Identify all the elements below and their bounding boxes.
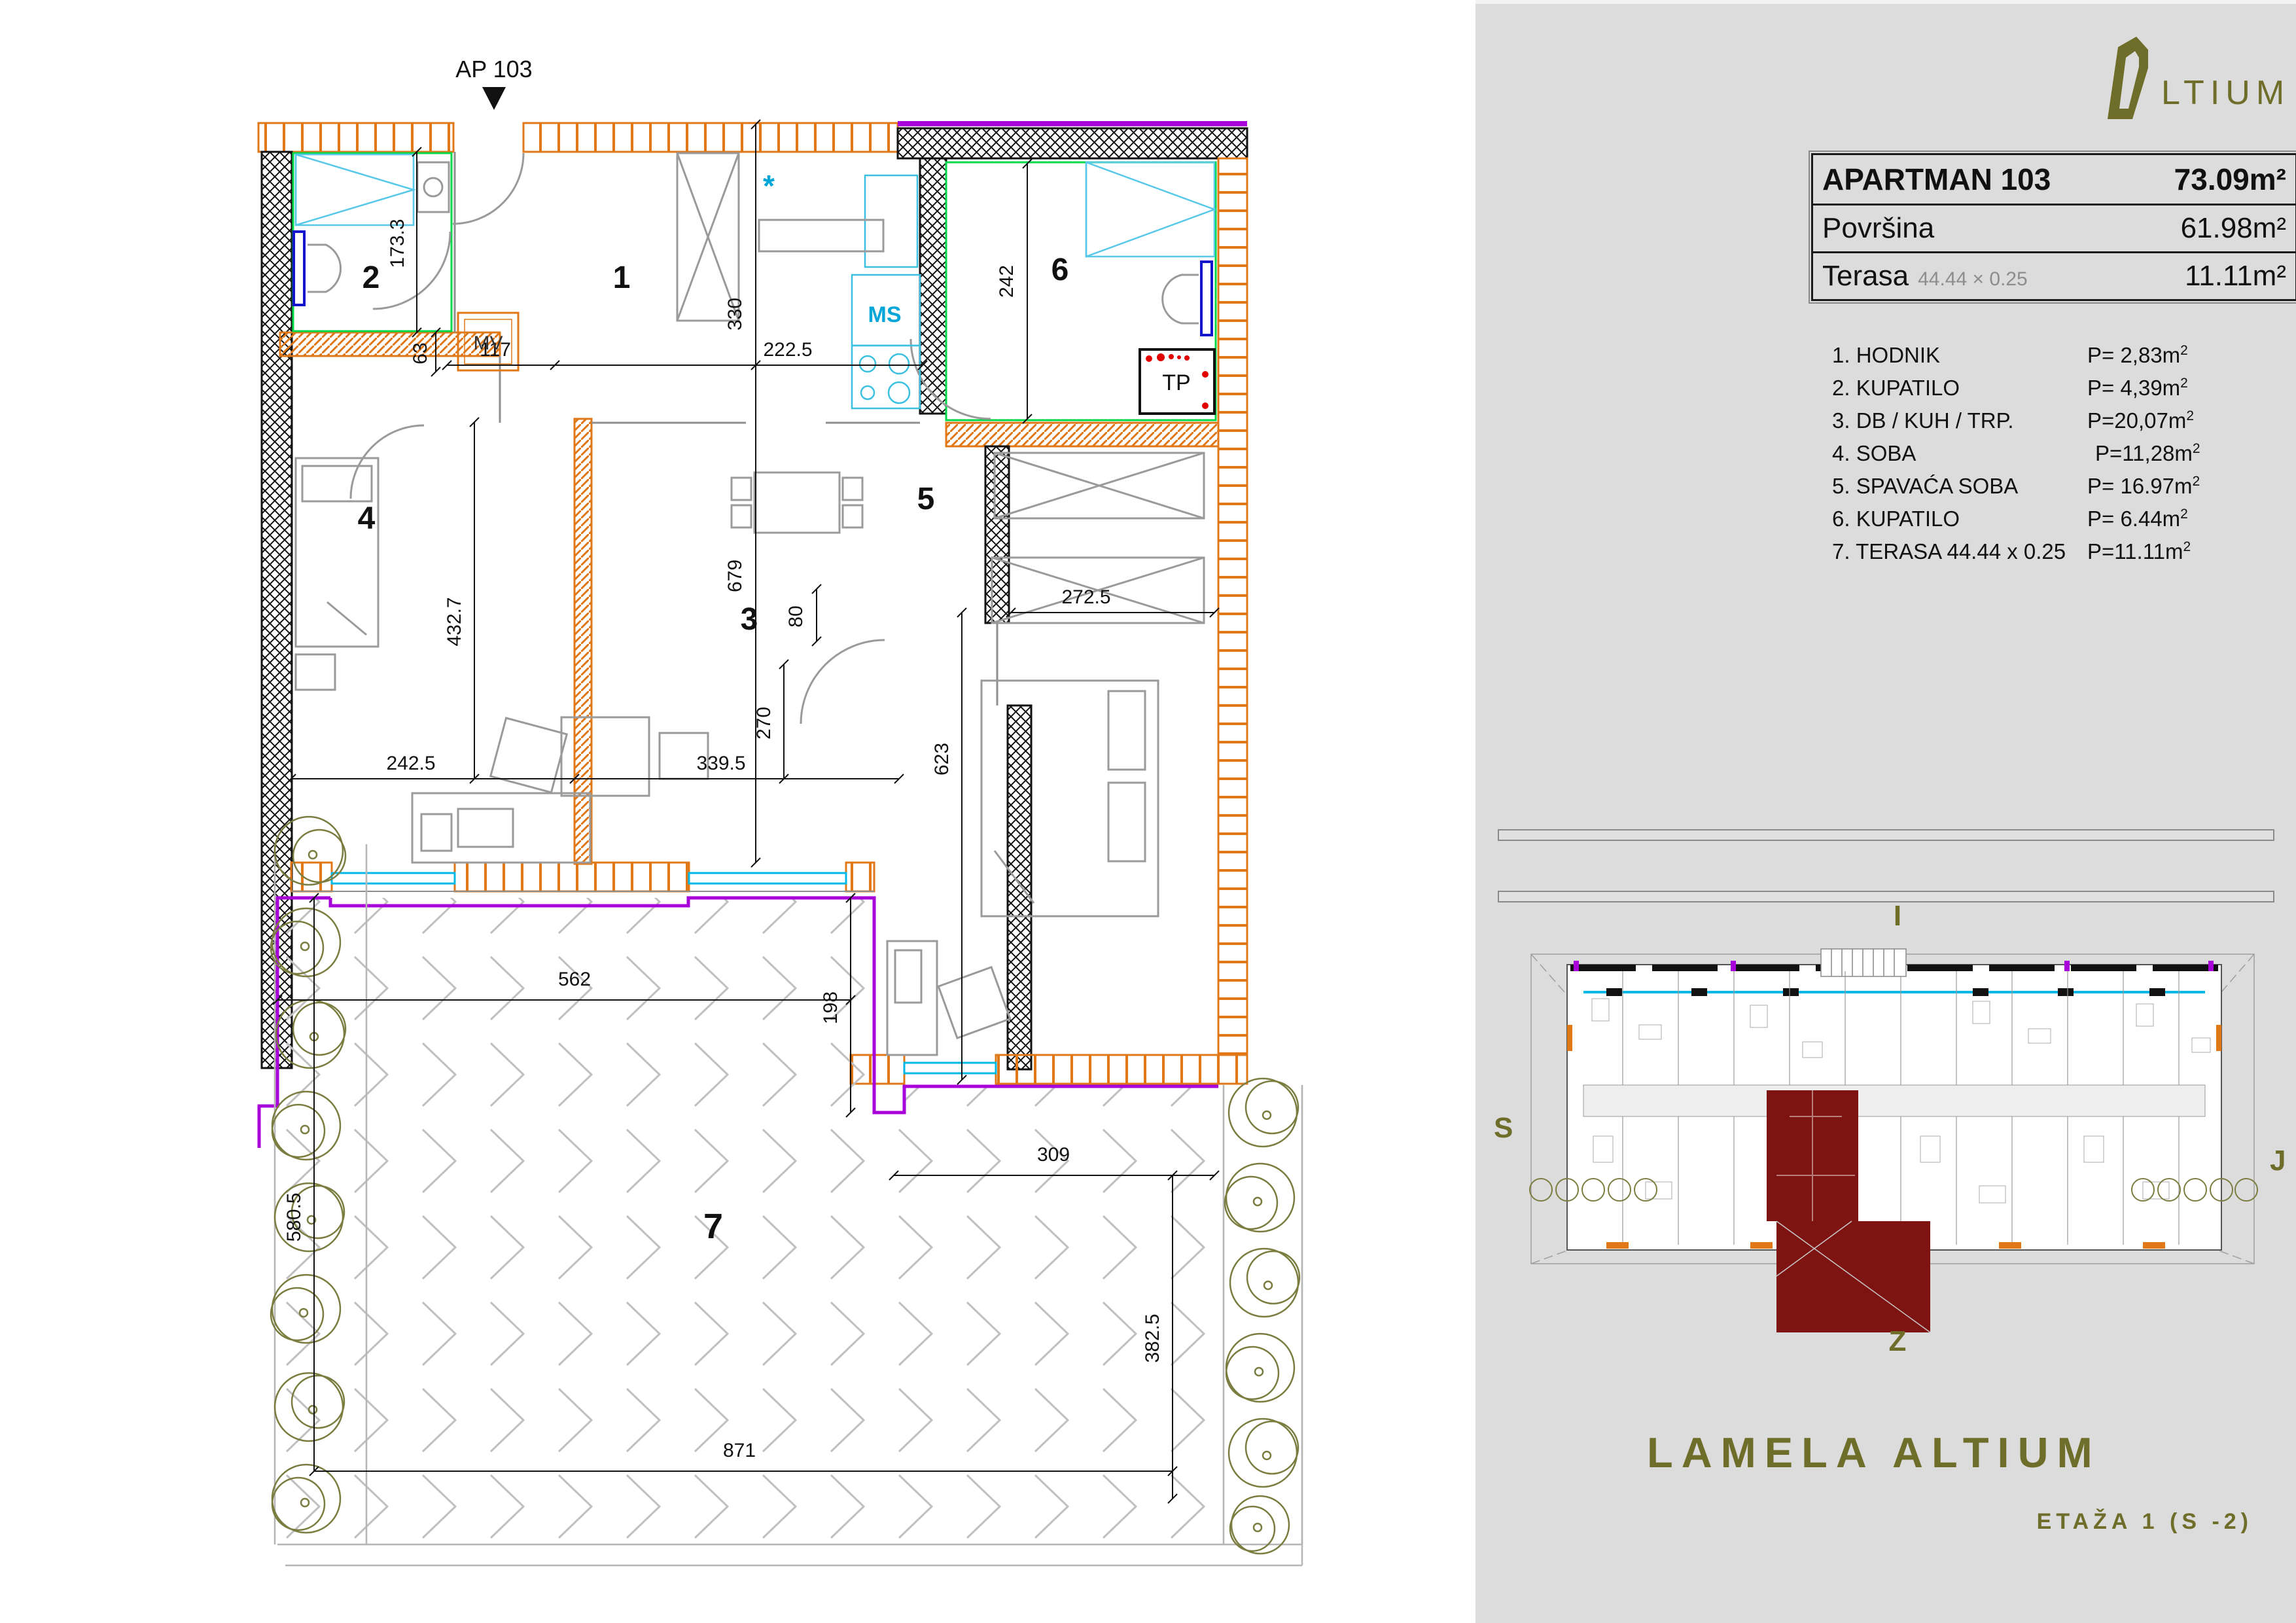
wall-top-crosshatch <box>898 128 1247 158</box>
window-terrace-1 <box>332 873 455 883</box>
room-label-6: 6 <box>1051 253 1069 287</box>
room-label-3: 3 <box>741 602 758 637</box>
marker-arrow-icon <box>482 87 506 110</box>
wall-top-purple <box>898 121 1247 126</box>
room6-toilet <box>1163 275 1199 323</box>
compass-west: S <box>1494 1112 1513 1144</box>
svg-text:173.3: 173.3 <box>387 219 408 268</box>
tree-column-right <box>1225 1079 1299 1554</box>
room6-shower <box>1086 162 1214 257</box>
dim-330: 330 <box>724 120 760 365</box>
compass-north: I <box>1894 900 1901 932</box>
wall-top-b <box>523 123 898 152</box>
dim-2425: 242.5 <box>386 753 435 774</box>
page: AP 103 <box>0 0 2296 1623</box>
star-label: * <box>763 169 775 203</box>
room4-desk <box>412 718 590 863</box>
svg-text:562: 562 <box>558 969 591 990</box>
sidebar: LTIUM APARTMAN 103 73.09m² Površina 61.9… <box>1475 0 2296 1623</box>
room2-toilet <box>308 245 341 292</box>
svg-text:679: 679 <box>724 560 746 592</box>
floor-label: ETAŽA 1 (S -2) <box>2037 1509 2253 1535</box>
svg-text:432.7: 432.7 <box>444 597 465 646</box>
wall-win-orange-a <box>291 863 332 891</box>
apartment-marker: AP 103 <box>455 56 532 110</box>
window-terrace-2 <box>689 873 846 883</box>
dim-270: 270 <box>753 660 788 783</box>
room2-basin-bowl <box>424 178 442 196</box>
room2-basin <box>417 162 449 212</box>
room4-bed <box>296 458 378 647</box>
wall-room2-bottom <box>280 332 500 356</box>
dim-117-2225: 117 222.5 <box>442 339 927 370</box>
room6-cistern <box>1201 262 1212 335</box>
mini-stairs <box>1821 949 1906 976</box>
room5-desk <box>887 941 1010 1055</box>
svg-text:198: 198 <box>820 991 841 1024</box>
room3-dining <box>732 473 862 533</box>
svg-text:63: 63 <box>410 342 431 364</box>
mv-label: MV <box>474 332 503 354</box>
kitchen <box>852 175 920 408</box>
dim-2725: 272.5 <box>1006 586 1219 617</box>
dim-242: 242 <box>996 159 1032 423</box>
room4-door-arc <box>351 425 424 499</box>
room-label-4: 4 <box>358 501 376 536</box>
room5-wardrobe-1 <box>995 453 1204 518</box>
wall-win-orange-c <box>846 863 874 891</box>
wall-win-orange-e <box>996 1055 1247 1084</box>
floor-plan: AP 103 <box>0 0 1475 1623</box>
svg-text:80: 80 <box>785 605 807 627</box>
svg-text:580.5: 580.5 <box>283 1192 305 1241</box>
room2-shower <box>296 154 414 225</box>
svg-text:309: 309 <box>1037 1144 1070 1166</box>
mini-site-plan: I S J Z <box>1475 4 2296 1623</box>
window-terrace-3 <box>904 1063 996 1073</box>
room-borders <box>293 153 1216 420</box>
apartment-marker-label: AP 103 <box>455 56 532 82</box>
room2-cistern <box>294 232 304 305</box>
tp-label: TP <box>1162 370 1190 395</box>
dim-4327: 432.7 <box>444 418 479 783</box>
separator-bar-2 <box>1498 891 2274 902</box>
mini-building <box>1530 949 2257 1332</box>
hall-wardrobe <box>677 153 739 321</box>
dim-2425-3395: 242.5 339.5 <box>287 753 904 783</box>
dim-2225: 222.5 <box>763 339 812 361</box>
separator-bar-1 <box>1498 830 2274 840</box>
compass-east: J <box>2270 1145 2286 1177</box>
svg-text:242: 242 <box>996 265 1017 298</box>
dim-3395: 339.5 <box>696 753 745 774</box>
ms-label: MS <box>868 302 902 327</box>
svg-text:871: 871 <box>723 1440 756 1461</box>
room5-door-arc <box>801 640 885 724</box>
room-label-2: 2 <box>362 260 380 295</box>
dim-80: 80 <box>785 584 821 646</box>
svg-text:623: 623 <box>931 743 953 776</box>
entry-door-arc <box>453 153 523 224</box>
dim-173: 173.3 <box>387 147 421 337</box>
wall-mid <box>574 419 592 864</box>
compass-south: Z <box>1889 1325 1907 1357</box>
wall-right-ladder <box>1218 158 1247 1054</box>
wall-room6-bottom <box>946 423 1218 446</box>
wall-kitchen-crosshatch <box>920 158 946 414</box>
room-label-5: 5 <box>917 482 935 516</box>
svg-text:330: 330 <box>724 298 746 330</box>
room2-door-arc <box>373 232 450 309</box>
terrace <box>259 844 1302 1565</box>
project-title: LAMELA ALTIUM <box>1647 1428 2101 1477</box>
wall-top-a <box>258 123 453 152</box>
wall-win-orange-b <box>455 863 689 891</box>
room-label-7: 7 <box>703 1207 723 1246</box>
room4-nightstand <box>296 654 335 690</box>
wall-room5-left-b <box>1008 705 1031 1069</box>
room-label-1: 1 <box>613 260 631 295</box>
wall-room5-left-a <box>985 446 1009 623</box>
svg-text:382.5: 382.5 <box>1142 1313 1163 1363</box>
svg-text:272.5: 272.5 <box>1061 586 1110 608</box>
svg-text:270: 270 <box>753 707 775 740</box>
